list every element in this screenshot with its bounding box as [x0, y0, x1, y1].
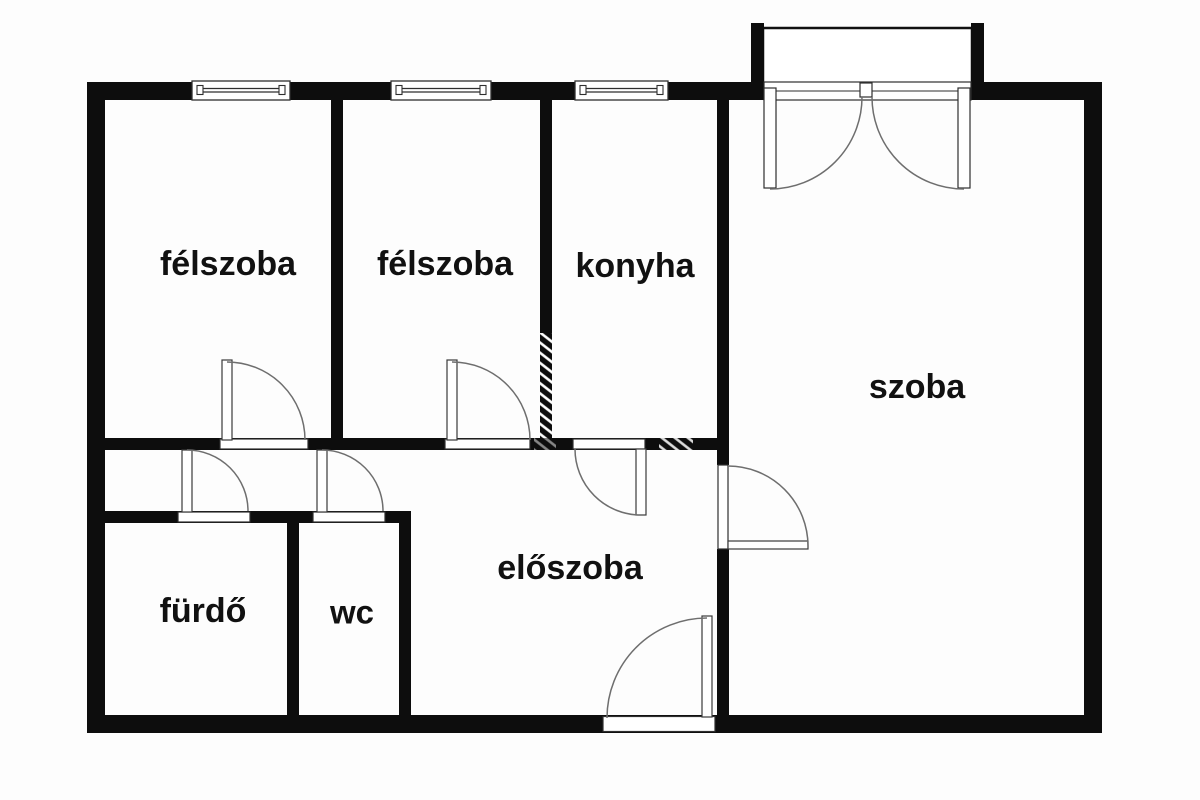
- room-label-konyha: konyha: [575, 249, 694, 283]
- opening-szoba: [718, 465, 728, 549]
- door-symbol-entry: [607, 616, 712, 718]
- wall-bottom: [87, 715, 1102, 733]
- opening-wc: [313, 512, 385, 522]
- door-symbol-felszoba-1: [222, 360, 305, 440]
- wall-wc-right: [399, 511, 411, 715]
- wall-szoba-lower: [717, 549, 729, 715]
- room-label-eloszoba: előszoba: [497, 551, 642, 585]
- door-symbol-szoba: [728, 466, 808, 549]
- french-door-leaf-right: [958, 88, 970, 188]
- wall-bath-wc-divider: [287, 523, 299, 715]
- opening-felszoba-2: [445, 439, 530, 449]
- windows: [192, 81, 668, 100]
- room-label-szoba: szoba: [869, 370, 965, 404]
- door-symbol-furdo: [182, 450, 248, 512]
- french-door-meeting-stile: [860, 83, 872, 97]
- room-label-furdo: fürdő: [160, 594, 247, 628]
- hatch-shaft: [540, 333, 552, 438]
- balcony-post-left: [751, 23, 764, 84]
- hatch-mark-corridor: [659, 438, 693, 450]
- opening-felszoba-1: [220, 439, 308, 449]
- hatch-mark-corridor-2: [534, 438, 556, 450]
- floorplan-canvas: félszoba félszoba konyha szoba fürdő wc …: [0, 0, 1200, 800]
- wall-szoba-upper: [717, 100, 729, 465]
- room-label-wc: wc: [330, 596, 374, 629]
- balcony-french-door: [764, 82, 971, 189]
- wall-left: [87, 82, 105, 733]
- opening-entry: [603, 717, 715, 732]
- exterior-walls: [87, 82, 1102, 733]
- wall-felszoba-divider: [331, 100, 343, 438]
- balcony: [751, 23, 984, 84]
- french-door-swing-right: [872, 97, 964, 189]
- window-symbol-konyha: [575, 81, 668, 100]
- balcony-post-right: [971, 23, 984, 84]
- wall-hatch-marks: [534, 333, 693, 450]
- window-symbol-felszoba-1: [192, 81, 290, 100]
- window-symbol-felszoba-2: [391, 81, 491, 100]
- balcony-slab: [763, 28, 972, 84]
- french-door-swing-left: [770, 97, 862, 189]
- wall-right: [1084, 82, 1102, 733]
- french-door-leaf-left: [764, 88, 776, 188]
- room-label-felszoba-2: félszoba: [377, 247, 513, 281]
- door-symbol-konyha: [575, 449, 646, 515]
- opening-furdo: [178, 512, 250, 522]
- door-symbol-wc: [317, 450, 383, 512]
- room-label-felszoba-1: félszoba: [160, 247, 296, 281]
- floorplan-drawing: [0, 0, 1200, 800]
- doors: [182, 360, 808, 718]
- opening-konyha: [573, 439, 645, 449]
- door-symbol-felszoba-2: [447, 360, 530, 440]
